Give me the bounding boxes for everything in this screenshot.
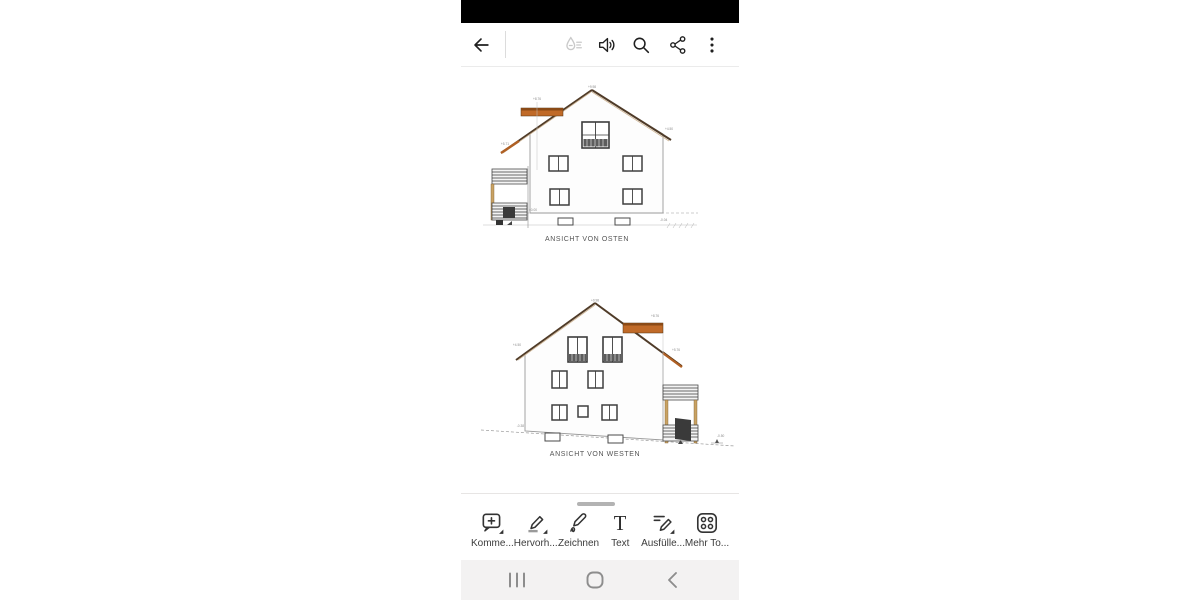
window [588, 371, 603, 388]
basement-window [608, 435, 623, 443]
view-caption-east: ANSICHT VON OSTEN [487, 236, 687, 243]
basement-window [615, 218, 630, 225]
ground-hatch [667, 223, 694, 228]
window [602, 405, 617, 420]
dim-label: +4.50 [513, 343, 521, 347]
tool-label: Zeichnen [558, 538, 599, 549]
neighbor-roof-band [521, 108, 563, 116]
dim-label: ±0.00 [529, 208, 537, 212]
recents-icon[interactable] [507, 570, 527, 590]
tools-row: Komme... Hervorh... Zeichnen [461, 510, 739, 560]
neighbor-roof-band [623, 323, 663, 333]
dim-label: +4.50 [665, 127, 673, 131]
dim-label: +9.98 [591, 299, 599, 303]
dim-label: -0.04 [660, 218, 667, 222]
svg-text:T: T [614, 513, 627, 535]
tool-label: Hervorh... [514, 538, 558, 549]
read-aloud-icon[interactable] [596, 34, 618, 56]
text-tool-button[interactable]: T Text [599, 510, 641, 560]
attic-window [582, 122, 609, 148]
status-bar [461, 0, 739, 23]
window [552, 405, 567, 420]
balcony [663, 385, 698, 444]
nav-back-icon[interactable] [663, 570, 683, 590]
share-icon[interactable] [667, 34, 689, 56]
tool-label: Ausfülle... [641, 538, 685, 549]
dim-label: +8.76 [533, 97, 541, 101]
ground-marker [711, 439, 723, 443]
pencil-draw-icon [566, 510, 592, 536]
text-icon: T [607, 510, 633, 536]
navigation-bar [461, 560, 739, 600]
more-tools-button[interactable]: Mehr To... [685, 510, 729, 560]
window [550, 189, 569, 205]
dim-label: -0.38 [517, 424, 524, 428]
annotation-tool-sheet: Komme... Hervorh... Zeichnen [461, 493, 739, 560]
basement-window [545, 433, 560, 441]
screenshot-canvas: +9.98 +8.76 +5.71 +4.50 ±0.00 -0.04 ANSI… [0, 0, 1200, 600]
window [623, 189, 642, 204]
balcony [491, 166, 528, 228]
liquid-mode-icon[interactable] [563, 34, 585, 56]
window [623, 156, 642, 171]
attic-window [568, 337, 587, 362]
draw-tool-button[interactable]: Zeichnen [558, 510, 600, 560]
pdf-page[interactable]: +9.98 +8.76 +5.71 +4.50 ±0.00 -0.04 ANSI… [461, 68, 739, 493]
home-icon[interactable] [585, 570, 605, 590]
attic-window [603, 337, 622, 362]
tool-label: Text [611, 538, 629, 549]
window-small [578, 406, 588, 417]
fill-sign-icon [650, 510, 676, 536]
east-elevation-drawing: +9.98 +8.76 +5.71 +4.50 ±0.00 -0.04 [479, 82, 725, 234]
window [549, 156, 568, 171]
more-tools-grid-icon [694, 510, 720, 536]
highlighter-icon [523, 510, 549, 536]
dim-label: +8.76 [651, 314, 659, 318]
dim-label: -0.50 [717, 434, 724, 438]
west-elevation-drawing: +9.98 +4.50 +8.76 +5.76 -0.38 -0.50 [479, 298, 737, 450]
tool-label: Komme... [471, 538, 514, 549]
comment-tool-button[interactable]: Komme... [471, 510, 514, 560]
top-toolbar [461, 23, 739, 67]
window [552, 371, 567, 388]
more-options-icon[interactable] [701, 34, 723, 56]
tool-label: Mehr To... [685, 538, 729, 549]
view-caption-west: ANSICHT VON WESTEN [495, 451, 695, 458]
search-icon[interactable] [630, 34, 652, 56]
dim-label: +5.71 [501, 142, 509, 146]
basement-window [558, 218, 573, 225]
comment-icon [479, 510, 505, 536]
drag-handle[interactable] [577, 502, 615, 506]
phone-screen: +9.98 +8.76 +5.71 +4.50 ±0.00 -0.04 ANSI… [461, 0, 739, 600]
back-icon[interactable] [470, 34, 492, 56]
dim-label: +5.76 [672, 348, 680, 352]
dim-label: +9.98 [588, 85, 596, 89]
fill-sign-tool-button[interactable]: Ausfülle... [641, 510, 685, 560]
highlight-tool-button[interactable]: Hervorh... [514, 510, 558, 560]
toolbar-divider [505, 31, 506, 58]
